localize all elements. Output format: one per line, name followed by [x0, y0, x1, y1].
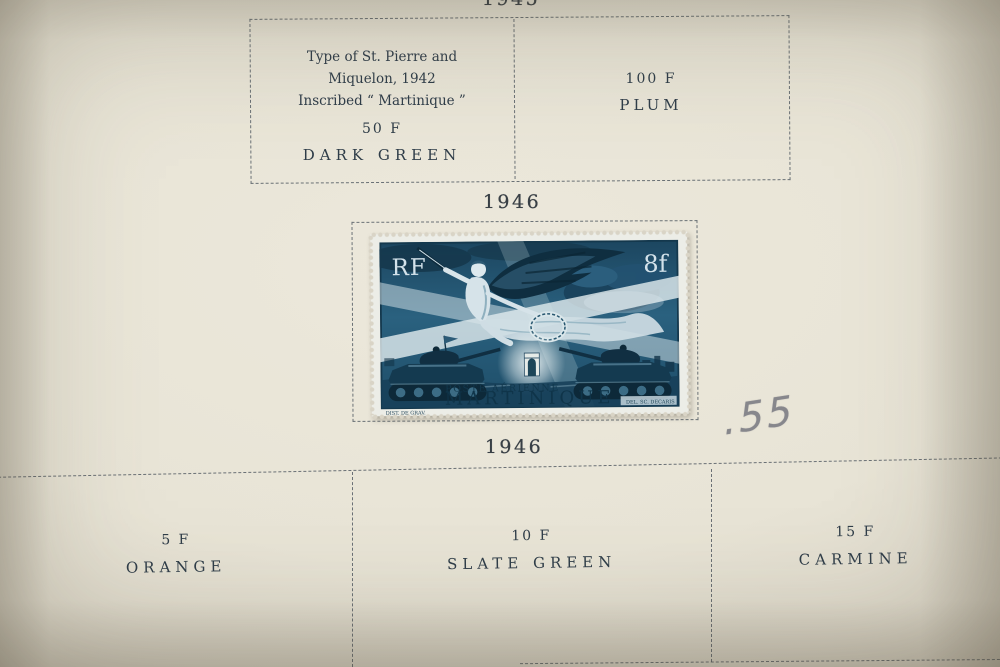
- color-name-label: PLUM: [518, 96, 784, 114]
- year-heading-1945: 1945: [461, 0, 561, 10]
- stamp-denomination: 8f: [643, 250, 670, 278]
- denomination-label: 50 F: [254, 121, 510, 137]
- color-name-label: ORANGE: [0, 556, 352, 579]
- stamp-engraving: RF 8f POSTE AÉRIENNE MARTINIQUE DEL. SC.…: [379, 240, 680, 417]
- martinique-airmail-stamp: RF 8f POSTE AÉRIENNE MARTINIQUE DEL. SC.…: [370, 232, 689, 417]
- lower-cell-15f: 15 F CARMINE: [711, 522, 1000, 570]
- upper-right-cell: 100 F PLUM: [518, 71, 784, 114]
- stamp-engraver-credit-left: DIST. DE GRAV.: [386, 410, 426, 416]
- denomination-label: 10 F: [352, 525, 711, 546]
- color-name-label: DARK GREEN: [254, 146, 510, 164]
- color-name-label: CARMINE: [711, 548, 1000, 570]
- year-heading-1946-middle: 1946: [462, 191, 562, 213]
- lower-grid-bottom-border: [520, 659, 1000, 664]
- pencil-note: .55: [722, 387, 796, 445]
- color-name-label: SLATE GREEN: [352, 551, 711, 574]
- lower-cell-10f: 10 F SLATE GREEN: [352, 525, 712, 574]
- denomination-label: 15 F: [711, 522, 1000, 542]
- denomination-label: 5 F: [0, 530, 352, 551]
- stamp-country-letters: RF: [391, 255, 427, 281]
- stamp-description-line: Miquelon, 1942: [254, 68, 510, 90]
- upper-left-cell: Type of St. Pierre and Miquelon, 1942 In…: [254, 46, 510, 164]
- stamp-description-line: Inscribed “ Martinique ”: [254, 90, 510, 112]
- year-heading-1946-lower: 1946: [464, 436, 564, 458]
- album-page-photo: 1945 Type of St. Pierre and Miquelon, 19…: [0, 0, 1000, 667]
- arc-de-triomphe: [524, 353, 539, 376]
- stamp-engraver-credit-right: DEL. SC. DECARIS: [626, 399, 675, 405]
- stamp-description-line: Type of St. Pierre and: [254, 46, 510, 68]
- denomination-label: 100 F: [518, 71, 784, 87]
- lower-grid-top-border: [0, 457, 1000, 478]
- stamp-territory-label: MARTINIQUE: [445, 387, 615, 409]
- lower-cell-5f: 5 F ORANGE: [0, 530, 352, 579]
